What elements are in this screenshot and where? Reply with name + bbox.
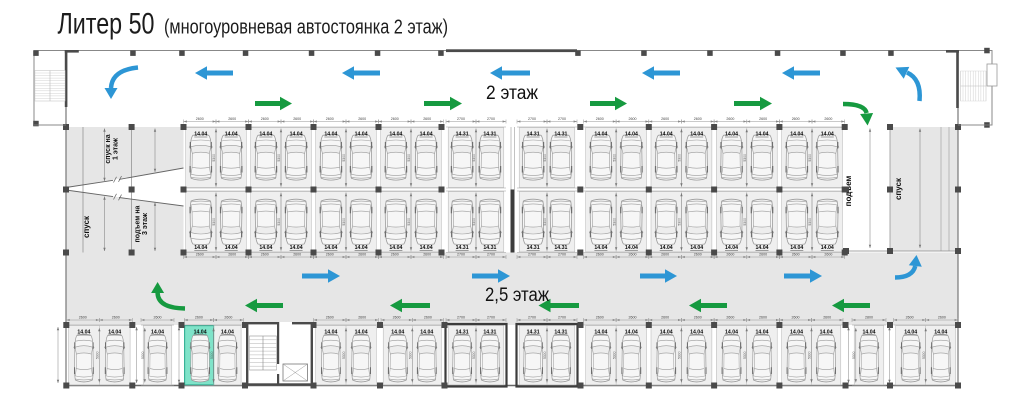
svg-text:5300: 5300 bbox=[612, 351, 616, 359]
svg-text:14.04: 14.04 bbox=[625, 330, 638, 336]
svg-text:2600: 2600 bbox=[261, 117, 269, 121]
svg-text:2600: 2600 bbox=[293, 253, 301, 257]
svg-text:14.04: 14.04 bbox=[594, 330, 607, 336]
svg-text:5300: 5300 bbox=[342, 218, 346, 226]
svg-text:2600: 2600 bbox=[726, 253, 734, 257]
svg-text:2600: 2600 bbox=[629, 117, 637, 121]
svg-text:2600: 2600 bbox=[154, 316, 162, 320]
svg-text:5300: 5300 bbox=[678, 154, 682, 162]
svg-text:14.31: 14.31 bbox=[554, 132, 567, 138]
svg-text:14.04: 14.04 bbox=[660, 245, 673, 251]
svg-text:14.04: 14.04 bbox=[389, 132, 402, 138]
svg-text:14.04: 14.04 bbox=[324, 132, 337, 138]
svg-text:14.04: 14.04 bbox=[863, 330, 876, 336]
svg-text:2600: 2600 bbox=[661, 117, 669, 121]
svg-text:14.04: 14.04 bbox=[790, 330, 803, 336]
svg-text:2600: 2600 bbox=[824, 253, 832, 257]
svg-text:2600: 2600 bbox=[792, 253, 800, 257]
svg-text:14.04: 14.04 bbox=[225, 245, 238, 251]
svg-text:5300: 5300 bbox=[96, 351, 100, 359]
svg-text:14.04: 14.04 bbox=[820, 330, 833, 336]
svg-text:5300: 5300 bbox=[212, 218, 216, 226]
svg-text:5300: 5300 bbox=[543, 351, 547, 359]
svg-text:14.04: 14.04 bbox=[625, 245, 638, 251]
svg-text:14.04: 14.04 bbox=[756, 132, 769, 138]
svg-text:5300: 5300 bbox=[808, 218, 812, 226]
svg-text:2600: 2600 bbox=[224, 316, 232, 320]
svg-text:14.04: 14.04 bbox=[690, 132, 703, 138]
svg-text:2600: 2600 bbox=[694, 316, 702, 320]
svg-text:2 этаж: 2 этаж bbox=[486, 83, 538, 104]
svg-text:подъем на: подъем на bbox=[135, 205, 142, 242]
svg-text:14.04: 14.04 bbox=[290, 245, 303, 251]
svg-text:2600: 2600 bbox=[196, 253, 204, 257]
svg-text:5300: 5300 bbox=[472, 154, 476, 162]
svg-text:5300: 5300 bbox=[210, 351, 214, 359]
svg-text:2600: 2600 bbox=[661, 316, 669, 320]
svg-text:2600: 2600 bbox=[423, 253, 431, 257]
svg-text:2600: 2600 bbox=[326, 316, 334, 320]
svg-text:2700: 2700 bbox=[457, 316, 465, 320]
svg-text:14.04: 14.04 bbox=[324, 245, 337, 251]
svg-text:2600: 2600 bbox=[326, 117, 334, 121]
svg-text:2600: 2600 bbox=[228, 117, 236, 121]
svg-text:2600: 2600 bbox=[824, 117, 832, 121]
svg-text:14.04: 14.04 bbox=[194, 245, 207, 251]
svg-text:14.04: 14.04 bbox=[756, 245, 769, 251]
svg-text:3 этаж: 3 этаж bbox=[142, 212, 149, 235]
svg-text:14.04: 14.04 bbox=[259, 132, 272, 138]
svg-text:5300: 5300 bbox=[342, 351, 346, 359]
svg-text:14.04: 14.04 bbox=[934, 330, 947, 336]
svg-text:5300: 5300 bbox=[612, 154, 616, 162]
svg-text:14.04: 14.04 bbox=[790, 245, 803, 251]
svg-text:2600: 2600 bbox=[228, 253, 236, 257]
svg-text:2600: 2600 bbox=[391, 253, 399, 257]
svg-text:2600: 2600 bbox=[906, 316, 914, 320]
svg-text:2600: 2600 bbox=[759, 316, 767, 320]
svg-text:5300: 5300 bbox=[407, 154, 411, 162]
svg-text:2600: 2600 bbox=[112, 316, 120, 320]
svg-text:14.04: 14.04 bbox=[725, 330, 738, 336]
svg-text:14.04: 14.04 bbox=[594, 132, 607, 138]
svg-text:2600: 2600 bbox=[326, 253, 334, 257]
svg-text:2600: 2600 bbox=[726, 117, 734, 121]
svg-text:14.31: 14.31 bbox=[483, 330, 496, 336]
svg-text:14.04: 14.04 bbox=[756, 330, 769, 336]
svg-text:2600: 2600 bbox=[358, 117, 366, 121]
svg-text:14.04: 14.04 bbox=[194, 330, 207, 336]
svg-text:2600: 2600 bbox=[792, 316, 800, 320]
svg-text:5300: 5300 bbox=[678, 351, 682, 359]
svg-text:2600: 2600 bbox=[358, 253, 366, 257]
svg-text:2700: 2700 bbox=[487, 117, 495, 121]
svg-text:5300: 5300 bbox=[612, 218, 616, 226]
svg-text:14.04: 14.04 bbox=[420, 132, 433, 138]
svg-text:1 этаж: 1 этаж bbox=[113, 137, 120, 160]
svg-text:2600: 2600 bbox=[661, 253, 669, 257]
svg-text:14.04: 14.04 bbox=[725, 132, 738, 138]
svg-text:2600: 2600 bbox=[424, 316, 432, 320]
svg-text:14.04: 14.04 bbox=[690, 330, 703, 336]
svg-text:2600: 2600 bbox=[694, 117, 702, 121]
svg-text:14.04: 14.04 bbox=[108, 330, 121, 336]
svg-text:14.04: 14.04 bbox=[821, 245, 834, 251]
svg-text:14.31: 14.31 bbox=[554, 245, 567, 251]
svg-text:14.04: 14.04 bbox=[420, 245, 433, 251]
svg-text:2600: 2600 bbox=[79, 316, 87, 320]
svg-text:5300: 5300 bbox=[543, 218, 547, 226]
svg-text:2600: 2600 bbox=[596, 253, 604, 257]
svg-text:5300: 5300 bbox=[852, 351, 856, 359]
svg-text:5300: 5300 bbox=[808, 351, 812, 359]
svg-text:5300: 5300 bbox=[922, 351, 926, 359]
svg-text:14.04: 14.04 bbox=[790, 132, 803, 138]
svg-text:14.04: 14.04 bbox=[725, 245, 738, 251]
svg-text:14.04: 14.04 bbox=[225, 132, 238, 138]
svg-text:2700: 2700 bbox=[457, 253, 465, 257]
svg-text:2600: 2600 bbox=[759, 117, 767, 121]
svg-text:14.04: 14.04 bbox=[259, 245, 272, 251]
svg-text:2600: 2600 bbox=[726, 316, 734, 320]
svg-text:2600: 2600 bbox=[823, 316, 831, 320]
svg-text:2700: 2700 bbox=[528, 117, 536, 121]
svg-text:14.04: 14.04 bbox=[660, 132, 673, 138]
svg-text:2600: 2600 bbox=[261, 253, 269, 257]
svg-text:спуск на: спуск на bbox=[105, 134, 112, 163]
svg-text:2600: 2600 bbox=[596, 316, 604, 320]
svg-text:14.04: 14.04 bbox=[391, 330, 404, 336]
svg-text:2700: 2700 bbox=[528, 253, 536, 257]
svg-text:14.31: 14.31 bbox=[554, 330, 567, 336]
svg-text:5300: 5300 bbox=[277, 154, 281, 162]
svg-text:14.31: 14.31 bbox=[483, 132, 496, 138]
svg-text:14.31: 14.31 bbox=[456, 330, 469, 336]
svg-text:14.31: 14.31 bbox=[456, 245, 469, 251]
svg-text:14.04: 14.04 bbox=[355, 245, 368, 251]
svg-text:2700: 2700 bbox=[457, 117, 465, 121]
svg-text:14.04: 14.04 bbox=[355, 330, 368, 336]
svg-text:14.04: 14.04 bbox=[355, 132, 368, 138]
svg-text:14.31: 14.31 bbox=[527, 245, 540, 251]
svg-text:2600: 2600 bbox=[423, 117, 431, 121]
svg-text:2700: 2700 bbox=[487, 253, 495, 257]
svg-text:5300: 5300 bbox=[277, 218, 281, 226]
svg-text:14.31: 14.31 bbox=[527, 132, 540, 138]
svg-text:14.04: 14.04 bbox=[194, 132, 207, 138]
svg-text:5300: 5300 bbox=[141, 351, 145, 359]
svg-text:2600: 2600 bbox=[629, 316, 637, 320]
svg-text:2600: 2600 bbox=[196, 117, 204, 121]
svg-text:спуск: спуск bbox=[82, 215, 91, 238]
svg-text:2700: 2700 bbox=[487, 316, 495, 320]
svg-text:5300: 5300 bbox=[212, 154, 216, 162]
svg-text:14.04: 14.04 bbox=[221, 330, 234, 336]
svg-text:5300: 5300 bbox=[407, 218, 411, 226]
svg-text:5300: 5300 bbox=[743, 351, 747, 359]
svg-text:5300: 5300 bbox=[743, 154, 747, 162]
svg-text:5300: 5300 bbox=[472, 351, 476, 359]
svg-text:2600: 2600 bbox=[393, 316, 401, 320]
svg-text:14.04: 14.04 bbox=[625, 132, 638, 138]
svg-text:14.31: 14.31 bbox=[527, 330, 540, 336]
svg-text:2600: 2600 bbox=[759, 253, 767, 257]
svg-text:(многоуровневая автостоянка 2: (многоуровневая автостоянка 2 этаж) bbox=[164, 17, 448, 39]
svg-text:14.04: 14.04 bbox=[660, 330, 673, 336]
svg-text:2700: 2700 bbox=[558, 316, 566, 320]
svg-text:2700: 2700 bbox=[558, 117, 566, 121]
svg-text:2700: 2700 bbox=[528, 316, 536, 320]
svg-text:5300: 5300 bbox=[342, 154, 346, 162]
svg-text:5300: 5300 bbox=[543, 154, 547, 162]
svg-text:14.04: 14.04 bbox=[904, 330, 917, 336]
svg-text:14.04: 14.04 bbox=[290, 132, 303, 138]
svg-text:5300: 5300 bbox=[743, 218, 747, 226]
svg-text:14.04: 14.04 bbox=[324, 330, 337, 336]
svg-text:2600: 2600 bbox=[358, 316, 366, 320]
svg-text:14.04: 14.04 bbox=[690, 245, 703, 251]
svg-text:5300: 5300 bbox=[808, 154, 812, 162]
svg-text:14.04: 14.04 bbox=[594, 245, 607, 251]
svg-text:14.04: 14.04 bbox=[420, 330, 433, 336]
svg-text:14.04: 14.04 bbox=[77, 330, 90, 336]
svg-text:14.04: 14.04 bbox=[389, 245, 402, 251]
svg-text:2600: 2600 bbox=[694, 253, 702, 257]
svg-text:Литер 50: Литер 50 bbox=[58, 8, 155, 41]
svg-text:2,5 этаж: 2,5 этаж bbox=[485, 285, 549, 306]
svg-text:2600: 2600 bbox=[391, 117, 399, 121]
svg-text:14.04: 14.04 bbox=[821, 132, 834, 138]
svg-text:2800: 2800 bbox=[865, 316, 873, 320]
svg-text:14.31: 14.31 bbox=[456, 132, 469, 138]
svg-text:2700: 2700 bbox=[558, 253, 566, 257]
svg-text:спуск: спуск bbox=[894, 177, 903, 200]
svg-text:2600: 2600 bbox=[938, 316, 946, 320]
svg-text:14.04: 14.04 bbox=[151, 330, 164, 336]
svg-text:2600: 2600 bbox=[195, 316, 203, 320]
svg-text:2600: 2600 bbox=[293, 117, 301, 121]
svg-text:2600: 2600 bbox=[629, 253, 637, 257]
svg-text:2600: 2600 bbox=[596, 117, 604, 121]
svg-text:2600: 2600 bbox=[792, 117, 800, 121]
svg-text:5300: 5300 bbox=[472, 218, 476, 226]
svg-text:5300: 5300 bbox=[409, 351, 413, 359]
svg-text:5300: 5300 bbox=[678, 218, 682, 226]
svg-text:14.31: 14.31 bbox=[483, 245, 496, 251]
